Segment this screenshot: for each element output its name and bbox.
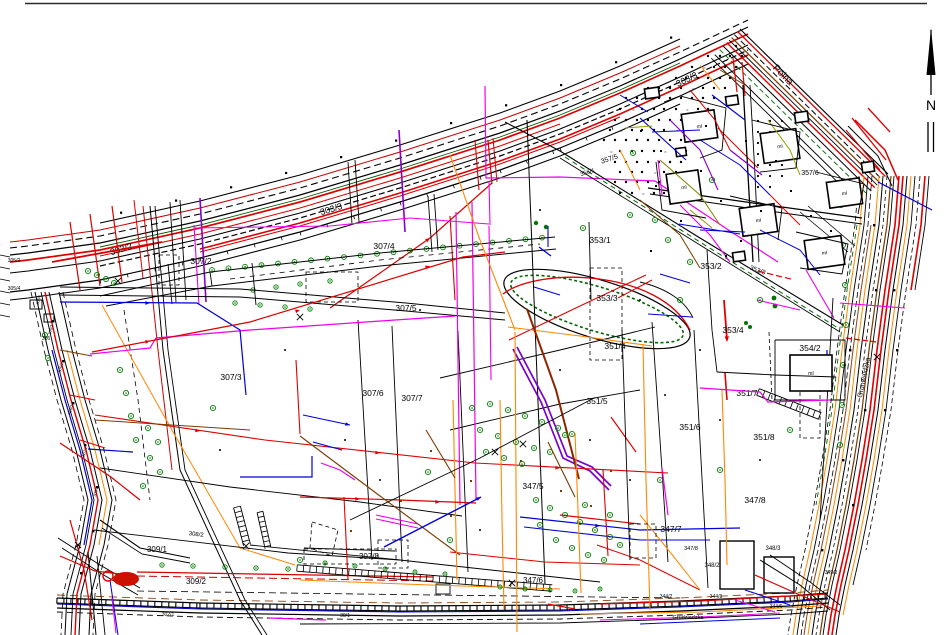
svg-text:309/2: 309/2 — [186, 577, 207, 586]
svg-text:=: = — [642, 191, 645, 196]
svg-text:305/2: 305/2 — [8, 258, 21, 264]
svg-text:=: = — [654, 170, 657, 175]
svg-text:=: = — [610, 149, 613, 154]
svg-text:347/8: 347/8 — [744, 495, 766, 505]
svg-text:mI: mI — [681, 185, 687, 192]
svg-text:354/2: 354/2 — [799, 343, 821, 353]
svg-text:351/7: 351/7 — [736, 388, 758, 398]
svg-text:=: = — [620, 128, 623, 133]
svg-text:307/3: 307/3 — [220, 372, 242, 382]
svg-text:306: 306 — [42, 336, 51, 342]
svg-text:=: = — [632, 107, 635, 112]
svg-text:349/2: 349/2 — [825, 570, 838, 576]
svg-text:=: = — [686, 107, 689, 112]
svg-text:347/6: 347/6 — [523, 576, 544, 585]
svg-text:353/2: 353/2 — [700, 261, 722, 271]
svg-text:344/3: 344/3 — [710, 594, 723, 600]
svg-text:347/5: 347/5 — [522, 481, 544, 491]
svg-text:347/8: 347/8 — [684, 546, 698, 552]
svg-text:307/5: 307/5 — [395, 303, 417, 313]
svg-text:mI: mI — [777, 144, 783, 151]
svg-text:353/4: 353/4 — [722, 325, 744, 335]
svg-text:351/8: 351/8 — [753, 432, 775, 442]
svg-text:351/6: 351/6 — [679, 422, 701, 432]
svg-text:mI: mI — [841, 191, 847, 198]
svg-text:353/3: 353/3 — [596, 293, 618, 303]
svg-text:mI: mI — [696, 124, 702, 131]
svg-text:307/2: 307/2 — [190, 256, 212, 266]
svg-text:mI: mI — [755, 218, 761, 225]
svg-text:N: N — [926, 97, 936, 113]
svg-text:348/3: 348/3 — [765, 546, 781, 552]
svg-text:344/2: 344/2 — [660, 594, 673, 600]
svg-text:305/4: 305/4 — [8, 286, 21, 292]
svg-text:344/6: 344/6 — [770, 604, 783, 610]
svg-text:357/6: 357/6 — [801, 170, 819, 177]
svg-text:348/2: 348/2 — [704, 563, 720, 569]
svg-text:=: = — [664, 149, 667, 154]
svg-text:mI: mI — [821, 250, 827, 257]
svg-text:307/7: 307/7 — [401, 393, 423, 403]
svg-text:Grudziadzka: Grudziadzka — [673, 615, 705, 621]
svg-text:307/8: 307/8 — [359, 552, 380, 561]
svg-text:307/6: 307/6 — [362, 388, 384, 398]
svg-text:=: = — [692, 86, 695, 91]
svg-text:353/1: 353/1 — [589, 235, 611, 245]
svg-text:30/1: 30/1 — [340, 613, 350, 619]
svg-text:302/1: 302/1 — [162, 612, 175, 618]
svg-text:307/4: 307/4 — [373, 241, 395, 251]
svg-text:309/1: 309/1 — [147, 545, 168, 554]
svg-text:351/5: 351/5 — [586, 396, 608, 406]
